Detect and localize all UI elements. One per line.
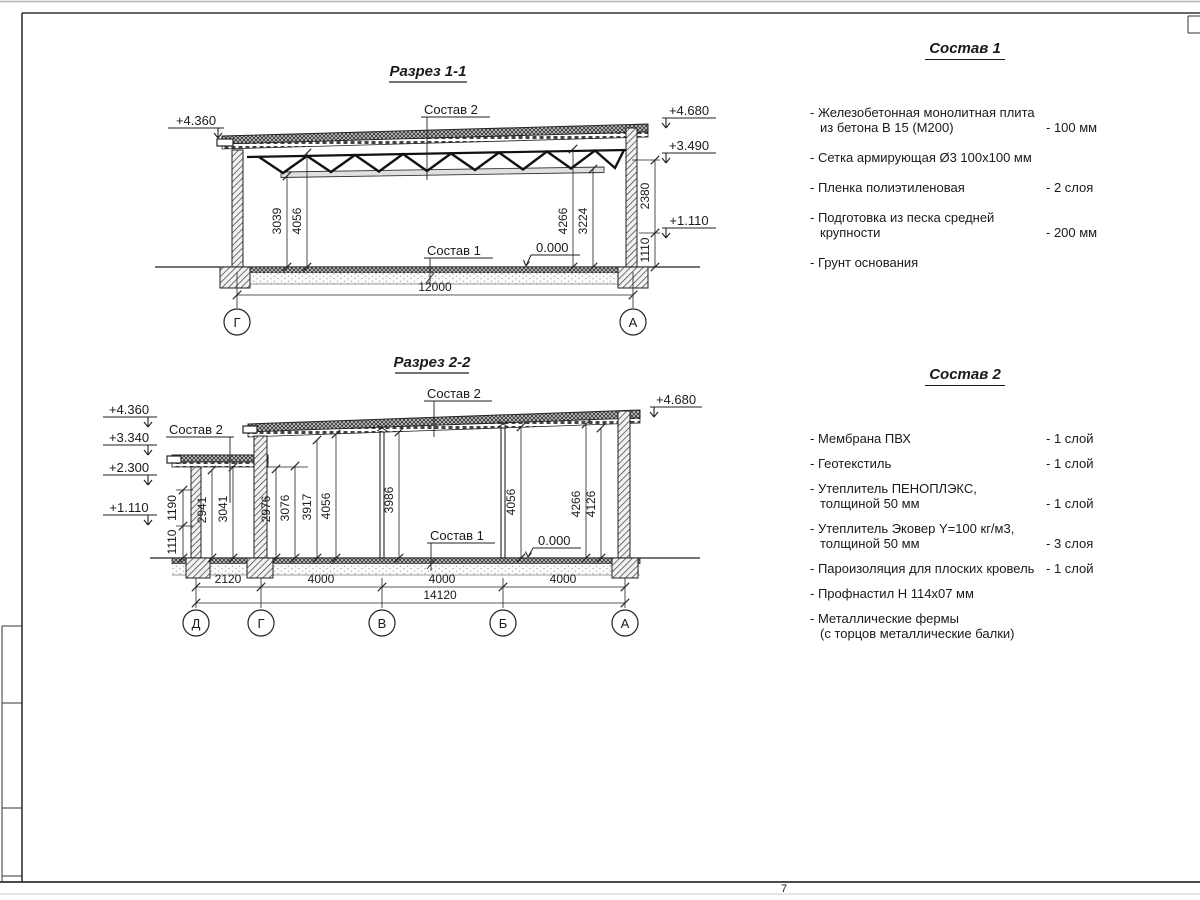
item-text: толщиной 50 мм xyxy=(810,536,1046,551)
item-text: - Мембрана ПВХ xyxy=(810,431,1046,446)
section2-sostav1-label: Состав 1 xyxy=(430,528,484,543)
item-text: - Грунт основания xyxy=(810,255,1046,270)
section-1-1: Разрез 1-1 xyxy=(155,63,716,335)
dim-4000b: 4000 xyxy=(429,572,456,586)
list-item: - Пароизоляция для плоских кровель - 1 с… xyxy=(810,561,1120,576)
elev-4360: +4.360 xyxy=(109,402,149,417)
grid-letter-v: В xyxy=(378,616,387,631)
elev-right-1110: +1.110 xyxy=(669,213,708,228)
list-item: - Металлические фермы(с торцов металличе… xyxy=(810,611,1120,641)
list-item: - Сетка армирующая Ø3 100х100 мм xyxy=(810,150,1120,165)
dim-4126: 4126 xyxy=(584,490,598,517)
item-value: - 1 слой xyxy=(1046,456,1094,471)
section1-zero-label: 0.000 xyxy=(536,240,569,255)
section1-title: Разрез 1-1 xyxy=(389,63,466,80)
item-value: - 100 мм xyxy=(1046,120,1097,135)
section1-roof xyxy=(217,124,648,149)
section2-sostav2-annex-label: Состав 2 xyxy=(169,422,223,437)
dim-2941: 2941 xyxy=(195,496,209,523)
elev-right-4680-s2: +4.680 xyxy=(656,392,696,407)
item-value: - 3 слоя xyxy=(1046,536,1093,551)
item-text: из бетона В 15 (М200) xyxy=(810,120,1046,135)
dim-4056b: 4056 xyxy=(504,488,518,515)
dim-3076: 3076 xyxy=(278,494,292,521)
elevation-arrow-icon xyxy=(650,407,658,417)
list-item: - Грунт основания xyxy=(810,255,1120,270)
dim-3917: 3917 xyxy=(300,493,314,520)
elevation-arrow-icon xyxy=(662,153,670,163)
item-text: - Подготовка из песка средней xyxy=(810,210,1046,225)
item-text: - Пароизоляция для плоских кровель xyxy=(810,561,1046,576)
dim-1110-left: 1110 xyxy=(165,529,179,554)
item-text: - Металлические фермы xyxy=(810,611,1046,626)
elev-left-4360: +4.360 xyxy=(176,113,216,128)
item-text: толщиной 50 мм xyxy=(810,496,1046,511)
dim-4056: 4056 xyxy=(290,207,304,234)
item-text: крупности xyxy=(810,225,1046,240)
dim-4056a: 4056 xyxy=(319,492,333,519)
item-value: - 1 слой xyxy=(1046,561,1094,576)
section2-title: Разрез 2-2 xyxy=(393,354,471,371)
section1-truss xyxy=(247,150,626,178)
dim-2120: 2120 xyxy=(215,572,242,586)
section1-sostav1-label: Состав 1 xyxy=(427,243,481,258)
dim-3986: 3986 xyxy=(382,486,396,513)
dim-4266: 4266 xyxy=(556,207,570,234)
item-text: - Утеплитель Эковер Y=100 кг/м3, xyxy=(810,521,1046,536)
list-item: - Мембрана ПВХ - 1 слой xyxy=(810,431,1120,446)
grid-letter-d: Д xyxy=(192,616,201,631)
item-text: - Утеплитель ПЕНОПЛЭКС, xyxy=(810,481,1046,496)
item-value: - 200 мм xyxy=(1046,225,1097,240)
dim-12000: 12000 xyxy=(418,280,452,294)
item-value: - 2 слоя xyxy=(1046,180,1093,195)
dim-1110-right: 1110 xyxy=(638,237,652,262)
dim-3039: 3039 xyxy=(270,207,284,234)
elev-2300: +2.300 xyxy=(109,460,149,475)
elev-right-4680: +4.680 xyxy=(669,103,709,118)
item-text: - Геотекстиль xyxy=(810,456,1046,471)
dim-1190: 1190 xyxy=(165,495,179,521)
frame-left-cells xyxy=(2,626,22,882)
elevation-arrow-icon xyxy=(662,118,670,128)
elevation-arrow-icon xyxy=(144,417,152,427)
dim-4000c: 4000 xyxy=(550,572,577,586)
section2-zero-label: 0.000 xyxy=(538,533,571,548)
sostav2-list: Состав 2 - Мембрана ПВХ - 1 слой - Геоте… xyxy=(810,366,1120,641)
list-item: - Пленка полиэтиленовая - 2 слоя xyxy=(810,180,1120,195)
dim-14120: 14120 xyxy=(423,588,457,602)
grid-letter-g: Г xyxy=(233,315,240,330)
frame-corner-box xyxy=(1188,16,1200,33)
list-item: - Подготовка из песка среднейкрупности -… xyxy=(810,210,1120,240)
item-text: - Сетка армирующая Ø3 100х100 мм xyxy=(810,150,1046,165)
elevation-arrow-icon xyxy=(144,515,152,525)
grid-letter-g2: Г xyxy=(257,616,264,631)
dim-3041: 3041 xyxy=(216,495,230,522)
elevation-arrow-icon xyxy=(214,128,222,138)
section1-sostav2-label: Состав 2 xyxy=(424,102,478,117)
page-number: 7 xyxy=(781,883,787,895)
list-item: - Профнастил Н 114х07 мм xyxy=(810,586,1120,601)
sostav2-title: Состав 2 xyxy=(810,366,1120,383)
grid-letter-a: А xyxy=(629,315,638,330)
grid-letter-a2: А xyxy=(621,616,630,631)
section2-sostav2-main-label: Состав 2 xyxy=(427,386,481,401)
item-text: (с торцов металлические балки) xyxy=(810,626,1046,641)
section2-left-elevs: +4.360 +3.340 +2.300 +1.110 xyxy=(103,402,157,515)
item-value: - 1 слой xyxy=(1046,496,1094,511)
dim-2380: 2380 xyxy=(638,182,652,209)
elev-right-3490: +3.490 xyxy=(669,138,709,153)
sostav1-list: Состав 1 - Железобетонная монолитная пли… xyxy=(810,40,1120,270)
list-item: - Железобетонная монолитная плитаиз бето… xyxy=(810,105,1120,135)
dim-2976: 2976 xyxy=(259,495,273,522)
elev-1110: +1.110 xyxy=(109,500,148,515)
dim-4000a: 4000 xyxy=(308,572,335,586)
list-item: - Утеплитель Эковер Y=100 кг/м3,толщиной… xyxy=(810,521,1120,551)
item-text: - Железобетонная монолитная плита xyxy=(810,105,1046,120)
elevation-arrow-icon xyxy=(144,445,152,455)
elevation-arrow-icon xyxy=(662,228,670,238)
elevation-arrow-icon xyxy=(144,475,152,485)
dim-3224: 3224 xyxy=(576,207,590,234)
list-item: - Утеплитель ПЕНОПЛЭКС,толщиной 50 мм - … xyxy=(810,481,1120,511)
section1-right-marks: +4.680 +3.490 +1.110 xyxy=(662,103,716,228)
item-text: - Пленка полиэтиленовая xyxy=(810,180,1046,195)
section-2-2: Разрез 2-2 xyxy=(103,354,702,636)
item-text: - Профнастил Н 114х07 мм xyxy=(810,586,1046,601)
list-item: - Геотекстиль - 1 слой xyxy=(810,456,1120,471)
sostav1-title: Состав 1 xyxy=(810,40,1120,57)
grid-letter-b: Б xyxy=(499,616,508,631)
item-value: - 1 слой xyxy=(1046,431,1094,446)
section2-roofs xyxy=(167,410,640,467)
dim-4266: 4266 xyxy=(569,490,583,517)
elev-3340: +3.340 xyxy=(109,430,149,445)
